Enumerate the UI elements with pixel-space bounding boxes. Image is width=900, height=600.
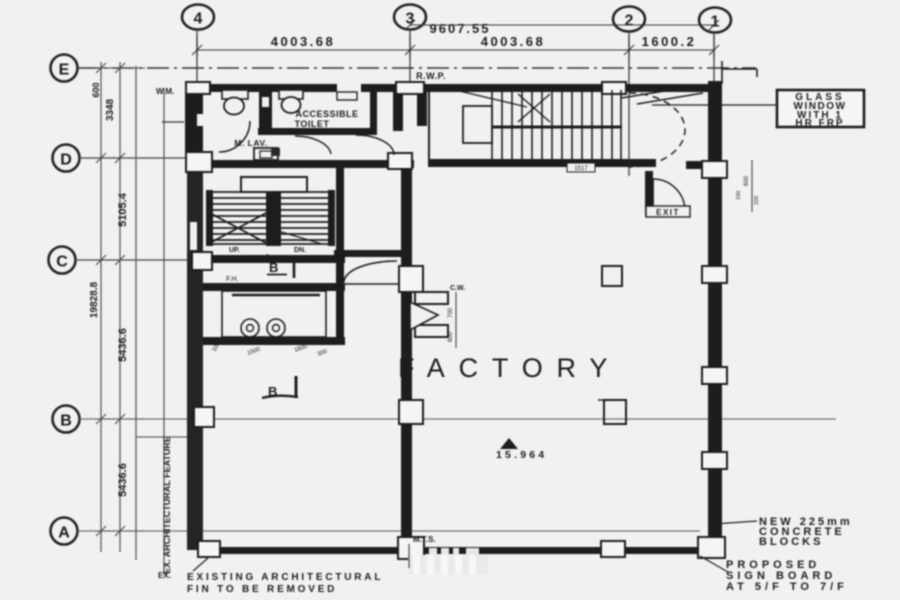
svg-text:EXIT: EXIT <box>656 208 680 217</box>
svg-text:5105.4: 5105.4 <box>117 192 129 227</box>
svg-text:C.W.: C.W. <box>450 285 465 292</box>
svg-text:EX.: EX. <box>158 571 171 580</box>
svg-text:2: 2 <box>625 13 634 30</box>
svg-text:600: 600 <box>744 175 750 186</box>
svg-text:DN.: DN. <box>294 247 306 254</box>
svg-text:15.964: 15.964 <box>496 449 547 461</box>
svg-text:EXISTING ARCHITECTURAL: EXISTING ARCHITECTURAL <box>187 572 383 583</box>
svg-text:AT 5/F TO 7/F: AT 5/F TO 7/F <box>726 581 848 593</box>
svg-text:BLOCKS: BLOCKS <box>759 536 823 548</box>
svg-text:B: B <box>60 413 72 430</box>
svg-text:TOILET: TOILET <box>295 119 330 129</box>
svg-text:R.W.P.: R.W.P. <box>416 71 446 81</box>
svg-text:C: C <box>56 254 68 271</box>
svg-text:D: D <box>60 152 72 169</box>
svg-text:19828.8: 19828.8 <box>89 281 100 318</box>
svg-text:700: 700 <box>448 307 454 318</box>
svg-text:100: 100 <box>754 196 760 205</box>
svg-text:HR FRP: HR FRP <box>795 118 844 129</box>
svg-text:1: 1 <box>711 14 720 31</box>
svg-text:4: 4 <box>194 11 203 28</box>
svg-text:UP.: UP. <box>229 247 240 254</box>
svg-text:FACTORY: FACTORY <box>398 353 621 383</box>
svg-text:A: A <box>58 525 70 542</box>
svg-text:1600.2: 1600.2 <box>642 34 697 49</box>
svg-text:5436.6: 5436.6 <box>117 463 129 497</box>
svg-text:100: 100 <box>736 191 742 200</box>
svg-text:FIN TO BE REMOVED: FIN TO BE REMOVED <box>187 584 337 595</box>
svg-text:4003.68: 4003.68 <box>271 34 336 49</box>
svg-text:5436.6: 5436.6 <box>117 328 129 362</box>
svg-text:ACCESSIBLE: ACCESSIBLE <box>295 109 358 119</box>
svg-text:3348: 3348 <box>105 98 116 121</box>
svg-text:600: 600 <box>448 331 454 342</box>
svg-text:1517: 1517 <box>574 166 588 172</box>
svg-text:600: 600 <box>91 82 101 97</box>
svg-text:W.M.: W.M. <box>156 87 174 96</box>
svg-text:M. LAV.: M. LAV. <box>234 138 267 148</box>
svg-text:M.T.S.: M.T.S. <box>413 535 436 544</box>
svg-text:4003.68: 4003.68 <box>481 34 546 49</box>
svg-text:E: E <box>59 62 70 79</box>
svg-text:F.H.: F.H. <box>226 276 239 283</box>
svg-text:B: B <box>269 260 278 275</box>
svg-text:EX. ARCHITECTURAL FEATURE: EX. ARCHITECTURAL FEATURE <box>162 436 172 574</box>
